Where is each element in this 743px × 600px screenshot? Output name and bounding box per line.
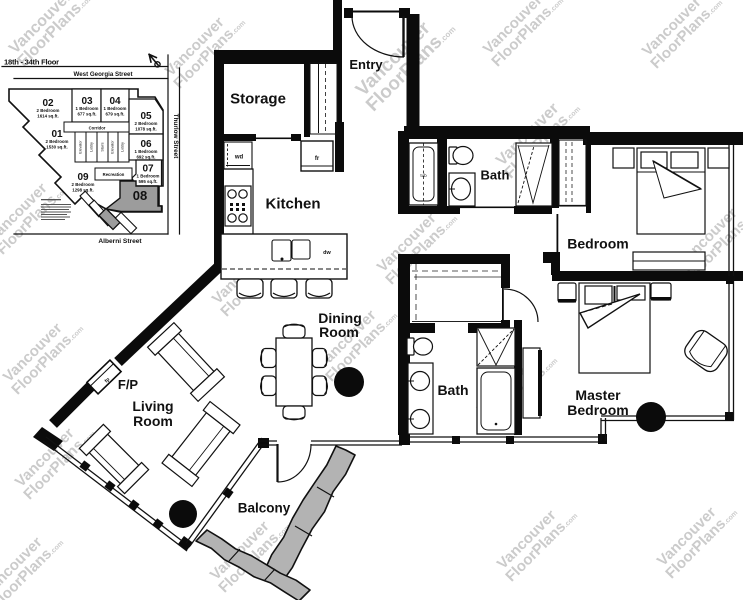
svg-text:Corridor: Corridor (89, 126, 106, 131)
svg-text:679 sq.ft.: 679 sq.ft. (105, 112, 124, 117)
svg-text:Elevator: Elevator (111, 140, 115, 154)
svg-text:Living: Living (132, 398, 173, 414)
svg-text:677 sq.ft.: 677 sq.ft. (77, 112, 96, 117)
svg-text:Balcony: Balcony (238, 501, 291, 516)
svg-text:Recreation: Recreation (103, 172, 125, 177)
svg-text:1078 sq.ft.: 1078 sq.ft. (135, 127, 156, 132)
svg-text:Bath: Bath (437, 382, 468, 398)
svg-text:1 Bedroom: 1 Bedroom (137, 174, 160, 179)
svg-text:2 Bedroom: 2 Bedroom (135, 121, 158, 126)
svg-text:Kitchen: Kitchen (265, 196, 320, 213)
svg-text:595 sq.ft.: 595 sq.ft. (138, 179, 157, 184)
svg-text:1 Bedroom: 1 Bedroom (76, 106, 99, 111)
svg-text:Thurlow Street: Thurlow Street (172, 114, 179, 160)
svg-text:dw: dw (323, 250, 331, 256)
svg-text:1530 sq.ft.: 1530 sq.ft. (46, 145, 67, 150)
svg-text:Entry: Entry (349, 57, 383, 72)
svg-text:692 sq.ft.: 692 sq.ft. (136, 155, 155, 160)
svg-text:Elevator: Elevator (79, 140, 83, 154)
svg-text:Alberni Street: Alberni Street (98, 238, 142, 245)
svg-text:West Georgia Street: West Georgia Street (73, 71, 132, 78)
svg-text:1 Bedroom: 1 Bedroom (104, 106, 127, 111)
svg-text:1614 sq.ft.: 1614 sq.ft. (37, 114, 58, 119)
svg-text:Master: Master (575, 387, 621, 403)
svg-text:2 Bedroom: 2 Bedroom (37, 108, 60, 113)
svg-text:tub: tub (420, 173, 427, 178)
svg-text:Storage: Storage (230, 91, 286, 108)
svg-text:Lobby: Lobby (90, 142, 94, 152)
svg-text:Room: Room (133, 413, 173, 429)
svg-text:Bath: Bath (481, 168, 510, 183)
svg-text:Stairs: Stairs (101, 142, 105, 151)
svg-text:08: 08 (133, 188, 147, 203)
svg-text:1 Bedroom: 1 Bedroom (135, 149, 158, 154)
svg-text:fr: fr (315, 156, 320, 162)
svg-text:2 Bedroom: 2 Bedroom (46, 139, 69, 144)
svg-text:1298 sq.ft.: 1298 sq.ft. (72, 188, 93, 193)
svg-text:18th - 34th Floor: 18th - 34th Floor (4, 58, 59, 67)
svg-text:wd: wd (234, 155, 244, 161)
svg-text:Room: Room (319, 324, 359, 340)
svg-text:Bedroom: Bedroom (567, 402, 628, 418)
svg-text:F/P: F/P (118, 377, 139, 392)
svg-text:Bedroom: Bedroom (567, 236, 628, 252)
svg-text:2 Bedroom: 2 Bedroom (72, 182, 95, 187)
svg-text:Lobby: Lobby (121, 142, 125, 152)
